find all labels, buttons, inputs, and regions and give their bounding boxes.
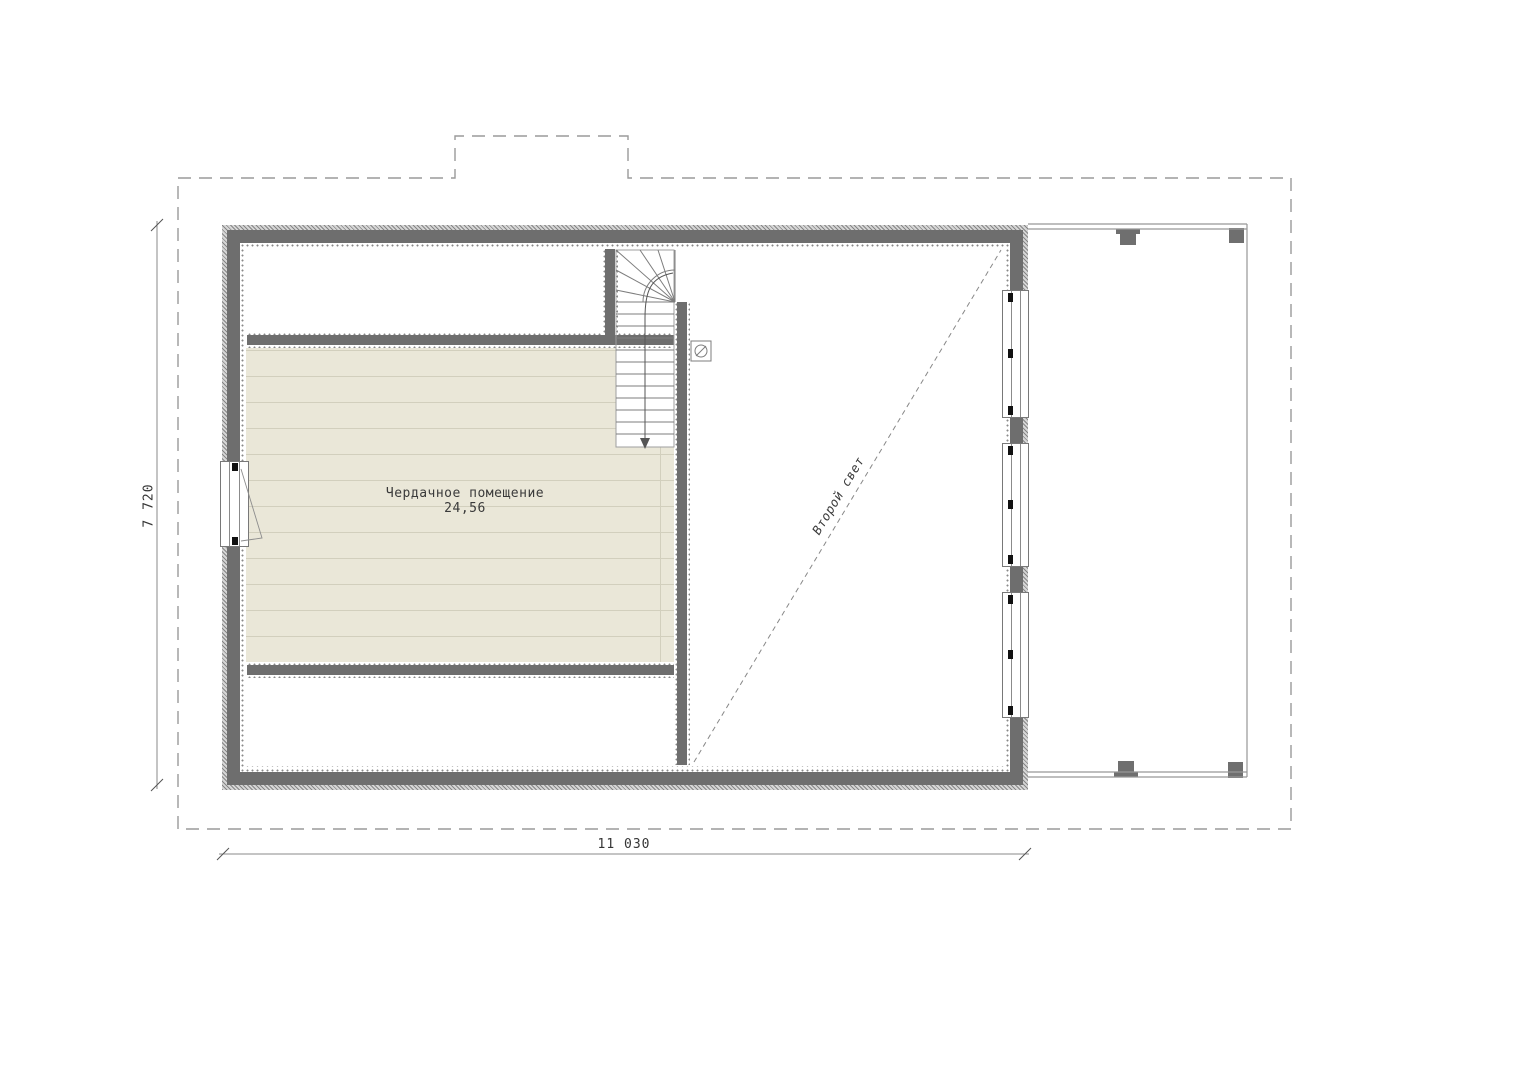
stair-winder-lines xyxy=(616,250,675,302)
vent-shaft-icon xyxy=(691,341,711,361)
dimension-label-height: 7 720 xyxy=(142,456,157,556)
dimension-label-width: 11 030 xyxy=(549,837,699,852)
linework-overlay xyxy=(0,0,1527,1080)
room-name-label: Чердачное помещение xyxy=(340,486,590,501)
room-area-label: 24,56 xyxy=(340,501,590,516)
floor-plan-canvas: Чердачное помещение 24,56 Второй свет 7 … xyxy=(0,0,1527,1080)
window-swing-lines xyxy=(241,469,262,541)
roof-outline xyxy=(178,136,1291,829)
terrace-outline xyxy=(1028,224,1247,777)
void-diagonal xyxy=(694,250,1001,762)
